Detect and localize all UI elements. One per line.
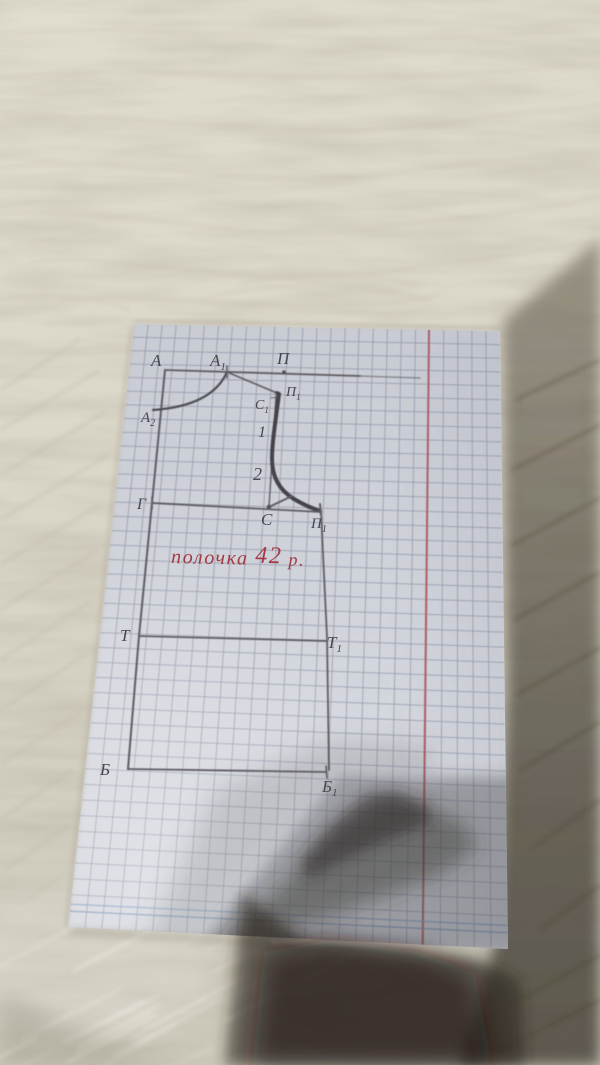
svg-text:Б: Б (99, 760, 110, 779)
svg-text:Г: Г (136, 496, 147, 513)
svg-text:1: 1 (258, 424, 266, 441)
svg-text:2: 2 (253, 464, 262, 484)
svg-text:А: А (150, 351, 162, 370)
svg-text:Т: Т (120, 626, 131, 645)
svg-text:П: П (276, 349, 291, 368)
svg-text:С: С (261, 510, 273, 529)
